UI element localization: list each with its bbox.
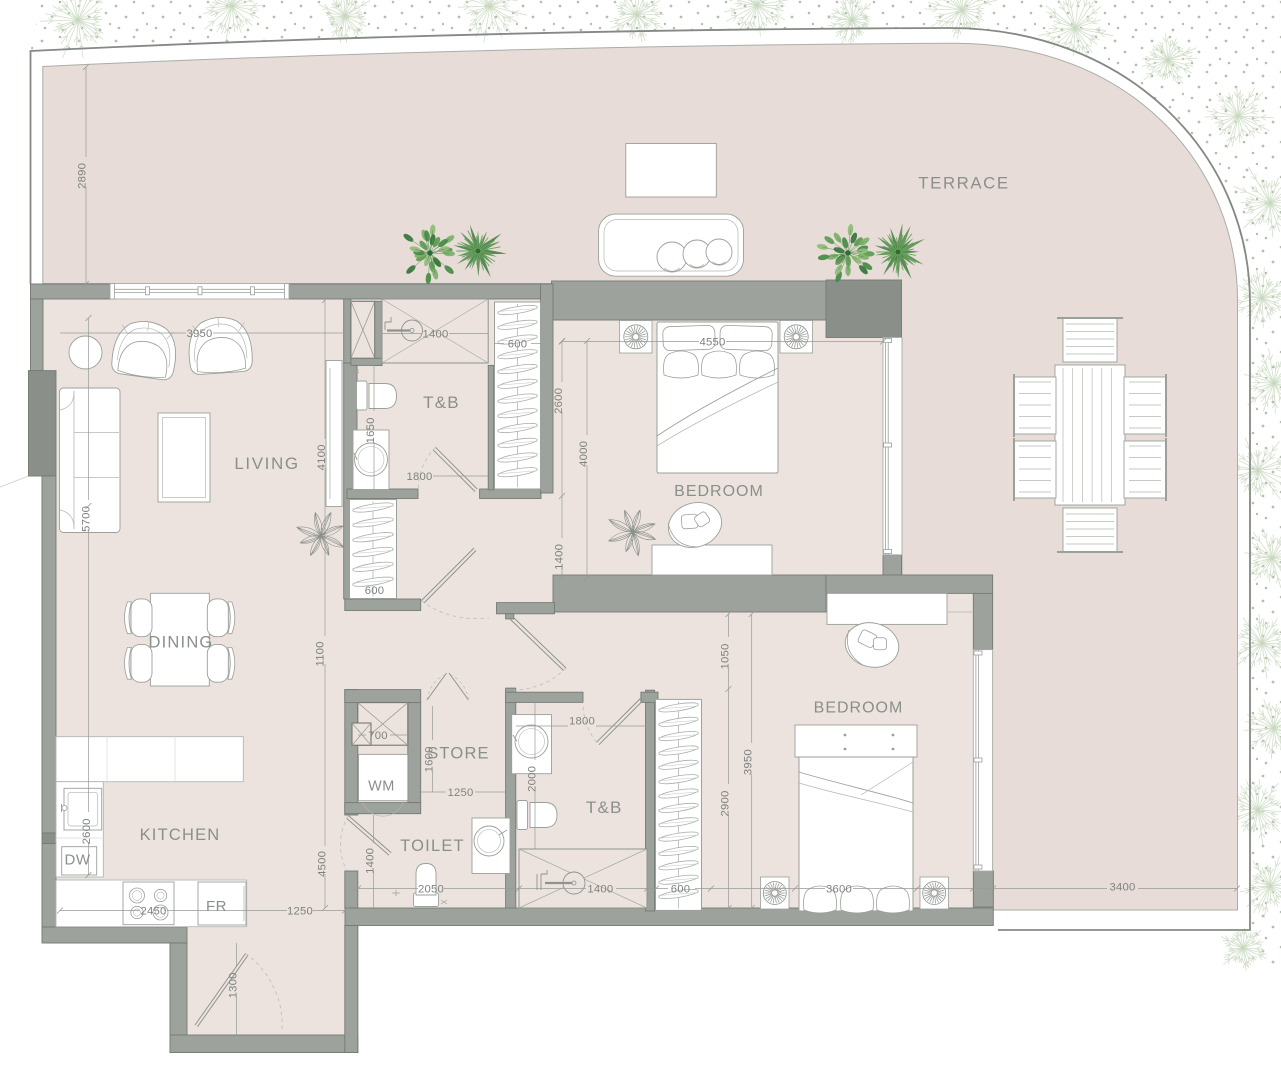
- svg-text:1300: 1300: [228, 972, 240, 998]
- svg-text:LIVING: LIVING: [234, 454, 299, 473]
- svg-text:600: 600: [671, 883, 690, 895]
- svg-text:2000: 2000: [527, 766, 539, 792]
- svg-text:3400: 3400: [1110, 881, 1136, 893]
- svg-text:4500: 4500: [317, 851, 329, 877]
- svg-text:1800: 1800: [407, 471, 433, 483]
- svg-text:BEDROOM: BEDROOM: [674, 483, 764, 500]
- svg-text:TERRACE: TERRACE: [918, 174, 1009, 193]
- svg-text:700: 700: [368, 730, 387, 742]
- svg-text:1400: 1400: [423, 328, 449, 340]
- svg-text:600: 600: [508, 338, 527, 350]
- svg-text:3600: 3600: [826, 883, 852, 895]
- svg-text:DW: DW: [65, 852, 91, 869]
- svg-text:5700: 5700: [81, 506, 93, 532]
- svg-text:DINING: DINING: [149, 634, 214, 652]
- svg-text:4000: 4000: [578, 441, 590, 467]
- svg-text:3950: 3950: [743, 749, 755, 775]
- svg-text:T&B: T&B: [586, 798, 623, 817]
- svg-text:1050: 1050: [720, 644, 732, 670]
- svg-text:BEDROOM: BEDROOM: [814, 700, 904, 717]
- svg-text:2600: 2600: [81, 818, 93, 844]
- svg-text:1100: 1100: [315, 641, 327, 666]
- svg-text:1650: 1650: [365, 417, 377, 443]
- svg-text:3950: 3950: [187, 328, 213, 340]
- svg-text:KITCHEN: KITCHEN: [140, 826, 221, 844]
- svg-text:TOILET: TOILET: [400, 837, 465, 855]
- svg-text:WM: WM: [368, 779, 395, 795]
- svg-text:4100: 4100: [316, 444, 328, 470]
- svg-text:2600: 2600: [553, 388, 565, 414]
- svg-text:1800: 1800: [569, 715, 595, 727]
- svg-text:2450: 2450: [141, 905, 167, 917]
- svg-text:2050: 2050: [418, 883, 444, 895]
- svg-text:1400: 1400: [365, 848, 377, 874]
- svg-text:2890: 2890: [77, 163, 89, 189]
- svg-text:1400: 1400: [554, 544, 566, 570]
- svg-text:1400: 1400: [587, 883, 613, 895]
- svg-text:1250: 1250: [287, 905, 313, 917]
- svg-text:T&B: T&B: [423, 393, 460, 412]
- svg-text:1250: 1250: [448, 787, 474, 799]
- svg-text:4550: 4550: [700, 336, 726, 348]
- svg-text:FR: FR: [206, 898, 227, 915]
- svg-text:600: 600: [365, 585, 384, 597]
- svg-text:2900: 2900: [720, 791, 732, 817]
- svg-text:STORE: STORE: [427, 745, 490, 763]
